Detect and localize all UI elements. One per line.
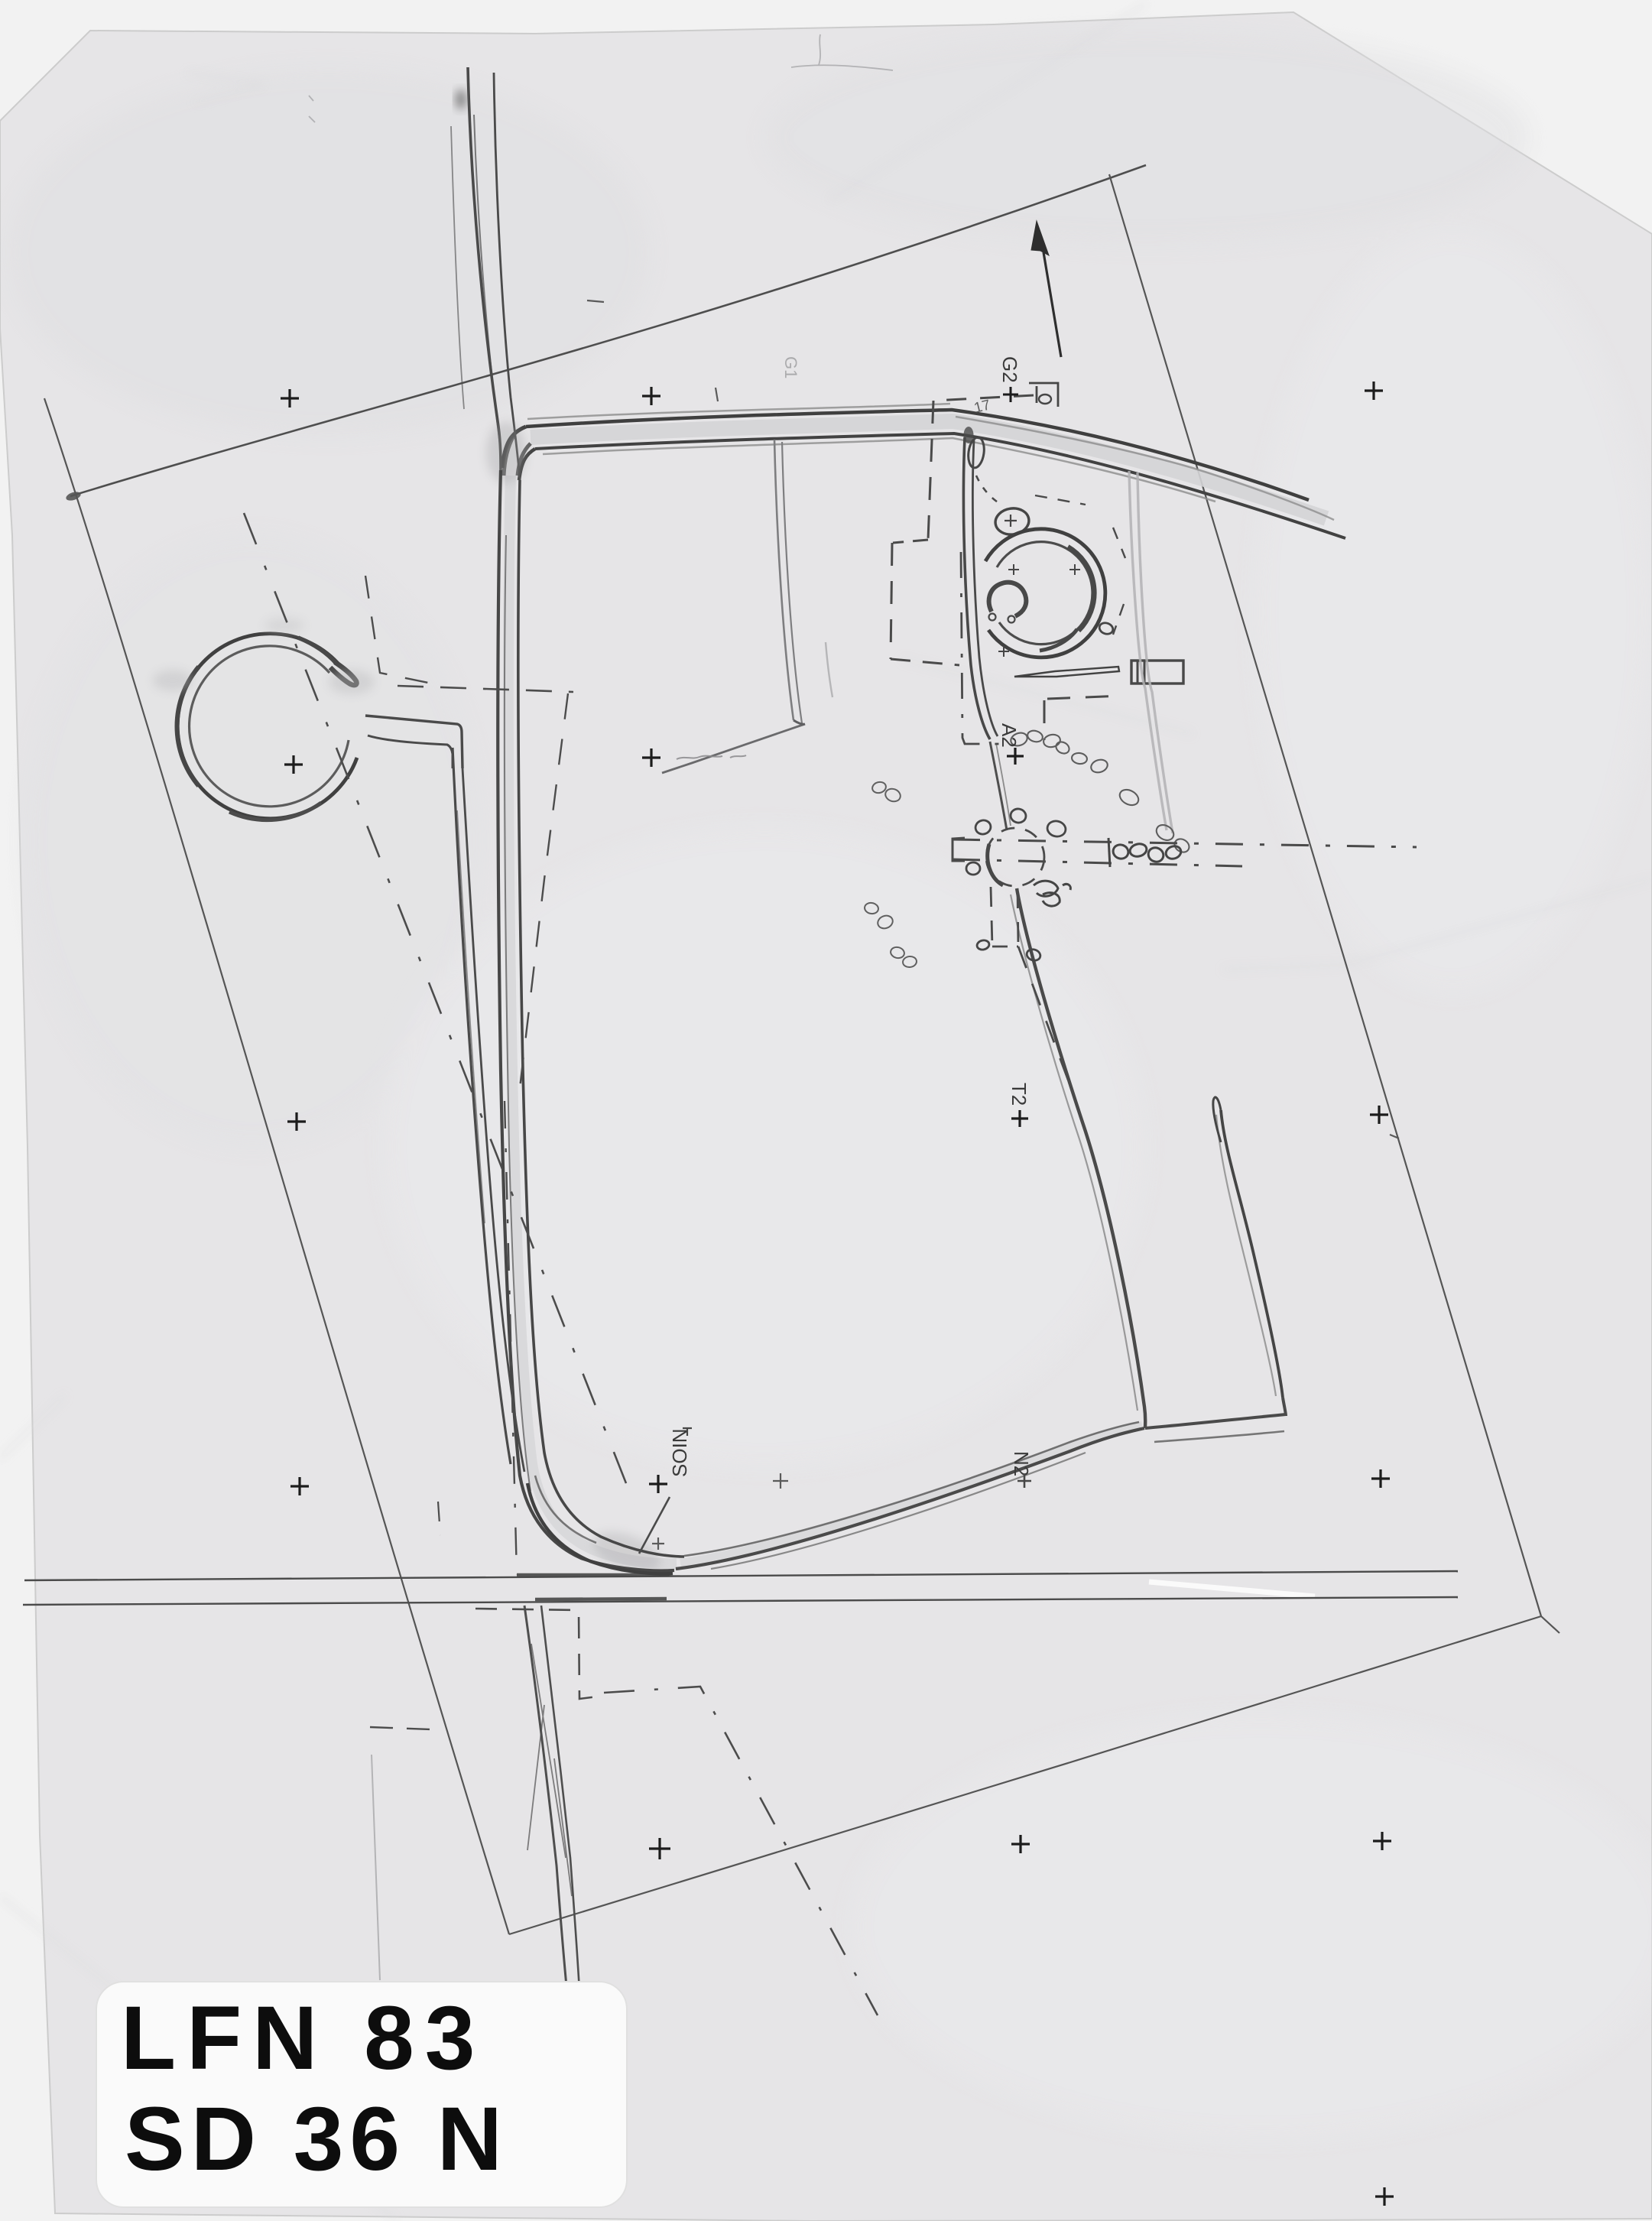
svg-text:N2: N2	[1010, 1451, 1033, 1476]
svg-text:A2: A2	[998, 723, 1021, 748]
svg-text:LFN 83: LFN 83	[121, 1988, 485, 2089]
svg-text:T2: T2	[1008, 1083, 1030, 1106]
svg-text:G2: G2	[998, 356, 1021, 383]
svg-text:G1: G1	[781, 356, 800, 378]
svg-text:SD 36 N: SD 36 N	[125, 2089, 508, 2190]
